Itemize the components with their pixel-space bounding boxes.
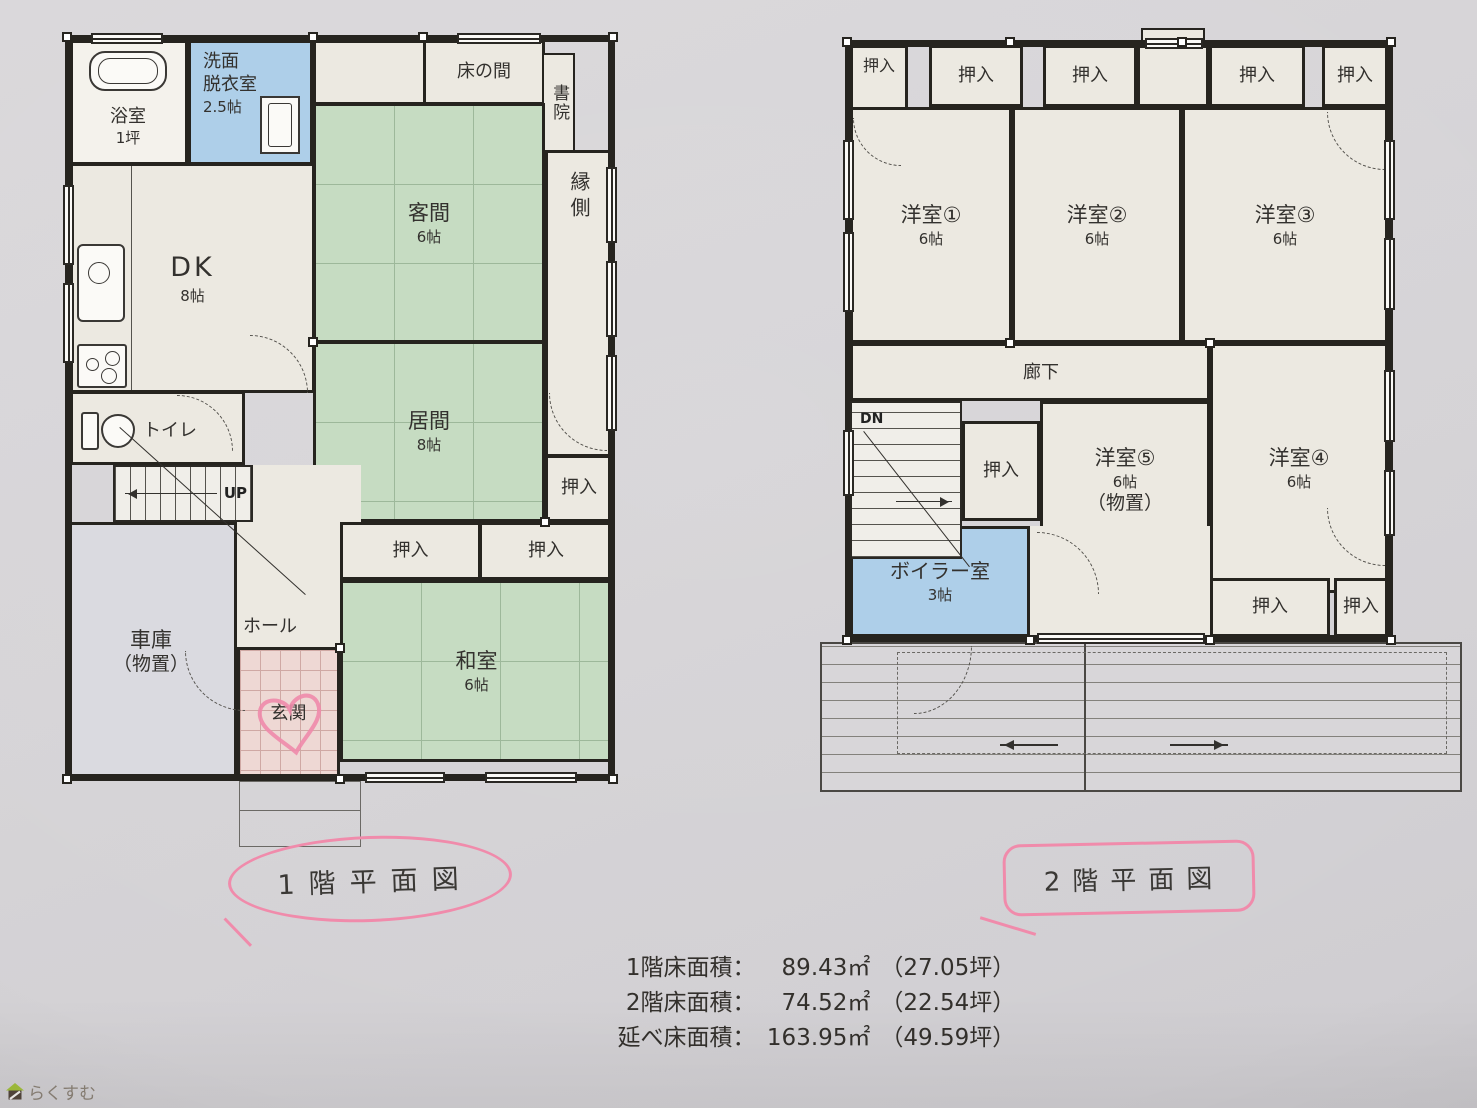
floor2-title-box-doodle: 2階平面図 bbox=[1002, 839, 1255, 916]
wall-post bbox=[1205, 338, 1215, 348]
wall-post bbox=[418, 32, 428, 42]
area-row-2f: 2階床面積： 74.52㎡ （22.54坪） bbox=[594, 983, 1014, 1018]
area-label: 2階床面積： bbox=[594, 983, 755, 1017]
wall-post bbox=[1386, 635, 1396, 645]
window bbox=[1145, 38, 1203, 49]
balcony-door bbox=[1037, 633, 1205, 644]
window bbox=[485, 772, 577, 783]
area-label: 延べ床面積： bbox=[594, 1018, 755, 1052]
area-value: 74.52㎡ bbox=[755, 983, 870, 1017]
wall-post bbox=[62, 32, 72, 42]
stairs-label: UP bbox=[224, 484, 247, 502]
area-row-total: 延べ床面積： 163.95㎡ （49.59坪） bbox=[594, 1018, 1014, 1053]
floorplan-photo: 浴室 1坪 洗面 脱衣室 2.5帖 床の間 書院 客間 6帖 DK 8帖 bbox=[0, 0, 1477, 1108]
toilet-icon bbox=[81, 412, 99, 450]
window bbox=[365, 772, 445, 783]
house-icon bbox=[6, 1083, 24, 1100]
watermark: らくすむ bbox=[6, 1079, 96, 1104]
wall-post bbox=[1025, 635, 1035, 645]
porch-step-line bbox=[240, 810, 360, 811]
doodle-tail bbox=[223, 917, 252, 946]
window bbox=[1384, 370, 1395, 442]
floor1-exterior-wall bbox=[65, 35, 615, 781]
watermark-text: らくすむ bbox=[28, 1079, 96, 1104]
area-row-1f: 1階床面積： 89.43㎡ （27.05坪） bbox=[594, 948, 1014, 983]
arrow-right-icon bbox=[1170, 744, 1228, 746]
floor1-plan: 浴室 1坪 洗面 脱衣室 2.5帖 床の間 書院 客間 6帖 DK 8帖 bbox=[65, 35, 615, 783]
heart-doodle bbox=[242, 679, 340, 767]
area-value: 163.95㎡ bbox=[755, 1018, 870, 1052]
floor2-title: 2階平面図 bbox=[1033, 858, 1224, 899]
area-tsubo: （22.54坪） bbox=[880, 983, 1014, 1017]
wall-post bbox=[608, 32, 618, 42]
window bbox=[1384, 140, 1395, 220]
window bbox=[606, 167, 617, 243]
stove-icon bbox=[77, 344, 127, 388]
up-arrow-icon bbox=[125, 493, 217, 494]
wall-post bbox=[842, 37, 852, 47]
bathtub-icon bbox=[89, 51, 167, 91]
wall-post bbox=[62, 774, 72, 784]
wall-post bbox=[1386, 37, 1396, 47]
roof-dashed-outline bbox=[897, 652, 1447, 754]
window bbox=[457, 33, 541, 44]
window bbox=[63, 283, 74, 363]
wall-post bbox=[335, 643, 345, 653]
window bbox=[63, 185, 74, 265]
window bbox=[1384, 470, 1395, 536]
wall-post bbox=[335, 774, 345, 784]
area-tsubo: （49.59坪） bbox=[880, 1018, 1014, 1052]
window bbox=[843, 140, 854, 220]
roof-balcony bbox=[820, 642, 1462, 792]
washing-machine-icon bbox=[260, 96, 300, 154]
wall-post bbox=[540, 517, 550, 527]
wall-post bbox=[308, 32, 318, 42]
wall-post bbox=[842, 635, 852, 645]
floor1-title: 1階平面図 bbox=[267, 856, 473, 902]
window bbox=[843, 232, 854, 312]
stairs-down: DN bbox=[850, 401, 962, 559]
wall-post bbox=[308, 337, 318, 347]
area-value: 89.43㎡ bbox=[755, 948, 870, 982]
kitchen-sink-icon bbox=[77, 244, 125, 322]
area-label: 1階床面積： bbox=[594, 948, 755, 982]
wall-post bbox=[1005, 338, 1015, 348]
wall-post bbox=[1177, 37, 1187, 47]
window bbox=[91, 33, 163, 44]
arrow-left-icon bbox=[1000, 744, 1058, 746]
doodle-tail bbox=[980, 916, 1036, 936]
wall-post bbox=[608, 774, 618, 784]
window bbox=[843, 430, 854, 496]
wall-post bbox=[1205, 635, 1215, 645]
window bbox=[606, 355, 617, 431]
area-tsubo: （27.05坪） bbox=[880, 948, 1014, 982]
window bbox=[1384, 238, 1395, 310]
down-arrow-icon bbox=[896, 501, 952, 502]
stairs-label: DN bbox=[860, 411, 883, 427]
window bbox=[606, 261, 617, 337]
floor2-plan: 押入 押入 押入 押入 押入 洋室① 6帖 洋室② 6帖 洋室③ 6帖 廊下 bbox=[845, 40, 1393, 800]
stairs-up: UP bbox=[113, 465, 253, 522]
floor-area-summary: 1階床面積： 89.43㎡ （27.05坪） 2階床面積： 74.52㎡ （22… bbox=[594, 948, 1014, 1053]
wall-post bbox=[1005, 37, 1015, 47]
